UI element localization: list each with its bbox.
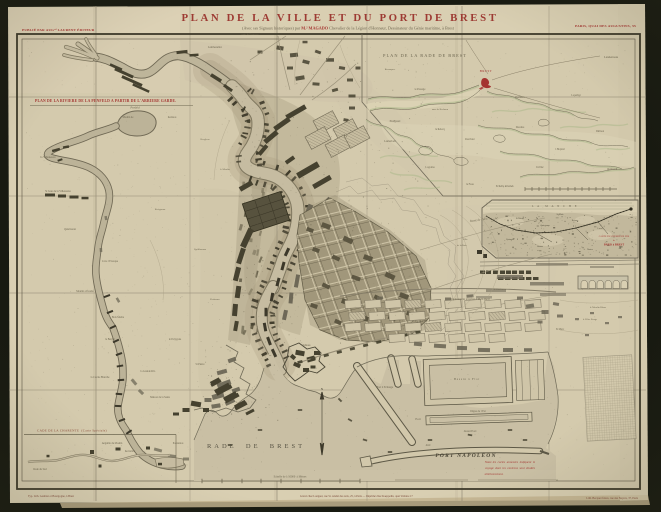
svg-text:le Guelmeur: le Guelmeur bbox=[494, 288, 507, 291]
svg-text:Lauberlach: Lauberlach bbox=[384, 140, 396, 143]
svg-text:le Pilier Rouge: le Pilier Rouge bbox=[583, 318, 597, 321]
svg-text:Dirinon: Dirinon bbox=[596, 130, 605, 133]
svg-text:Rennes: Rennes bbox=[572, 220, 579, 222]
svg-text:RADE DE BREST: RADE DE BREST bbox=[207, 443, 305, 450]
svg-text:route de Lesneven: route de Lesneven bbox=[242, 34, 260, 36]
svg-text:Vannes: Vannes bbox=[537, 246, 543, 248]
svg-text:Nota: les cartes annexées i: Nota: les cartes annexées indiquent le bbox=[484, 460, 536, 464]
svg-text:Avant Port: Avant Port bbox=[464, 429, 477, 433]
svg-text:Gravé chez Longuet, rue St. An: Gravé chez Longuet, rue St. André des Ar… bbox=[300, 495, 413, 498]
svg-text:anse de Kerhuon: anse de Kerhuon bbox=[432, 108, 449, 111]
svg-text:la Villeneuve: la Villeneuve bbox=[40, 155, 56, 159]
svg-text:Laval: Laval bbox=[598, 228, 603, 230]
svg-text:Rostiviec: Rostiviec bbox=[465, 138, 476, 141]
svg-text:PLAN DE LA RIVIERE DE LA PENFE: PLAN DE LA RIVIERE DE LA PENFELD A PARTI… bbox=[35, 99, 176, 103]
svg-text:Lambezellec: Lambezellec bbox=[208, 46, 223, 49]
svg-text:la Cavale Blanche: la Cavale Blanche bbox=[91, 376, 111, 379]
svg-text:Port: Port bbox=[415, 417, 420, 421]
svg-text:le Moulin Blanc: le Moulin Blanc bbox=[590, 306, 607, 309]
svg-text:le Faou: le Faou bbox=[466, 183, 474, 186]
svg-text:Typ. Lith. Gaultier et Bourgog: Typ. Lith. Gaultier et Bourgogne, à Bres… bbox=[28, 495, 74, 498]
svg-text:Jetée: Jetée bbox=[425, 444, 431, 447]
svg-text:PARIS, QUAI DES AUGUSTINS, 55: PARIS, QUAI DES AUGUSTINS, 55 bbox=[575, 24, 636, 28]
svg-text:Kergleuz: Kergleuz bbox=[200, 138, 210, 141]
svg-text:Plougastel: Plougastel bbox=[390, 120, 401, 123]
svg-text:Kervallon: Kervallon bbox=[125, 450, 136, 453]
svg-text:PUBLIÉ PAR AUGᵉᵈ LAURENT ÉDITE: PUBLIÉ PAR AUGᵉᵈ LAURENT ÉDITEUR bbox=[22, 27, 95, 32]
svg-text:PARIS à BREST: PARIS à BREST bbox=[604, 244, 624, 247]
svg-text:la Grande Riv.: la Grande Riv. bbox=[140, 370, 155, 373]
svg-text:de la Rade: de la Rade bbox=[457, 244, 467, 247]
svg-text:Quielvezan: Quielvezan bbox=[64, 228, 77, 231]
svg-text:Irvillac: Irvillac bbox=[536, 166, 544, 169]
svg-text:Guingamp: Guingamp bbox=[540, 224, 550, 227]
svg-text:le Bergot: le Bergot bbox=[105, 338, 115, 341]
svg-text:Kerhuon: Kerhuon bbox=[515, 96, 525, 99]
svg-text:PLAN DE LA RADE DE BREST: PLAN DE LA RADE DE BREST bbox=[383, 53, 467, 58]
svg-text:Maison de la Sante: Maison de la Sante bbox=[150, 396, 171, 399]
svg-text:CARTE DU CHEMIN DE FER: CARTE DU CHEMIN DE FER bbox=[599, 235, 630, 238]
svg-text:voyage dont les environs s: voyage dont les environs sont étudiés bbox=[485, 466, 536, 470]
svg-text:Moulin de: Moulin de bbox=[123, 116, 135, 119]
svg-text:Anguille du Moulin: Anguille du Moulin bbox=[102, 442, 123, 445]
svg-text:le Moulin: le Moulin bbox=[220, 168, 231, 171]
svg-text:Moulin a Poudre: Moulin a Poudre bbox=[76, 290, 94, 293]
svg-text:Château: Château bbox=[302, 344, 311, 347]
svg-text:Cave l Evesque: Cave l Evesque bbox=[102, 260, 119, 263]
svg-text:Nantes: Nantes bbox=[587, 249, 593, 251]
svg-text:PORT NAPOLÉON: PORT NAPOLÉON bbox=[435, 451, 496, 459]
svg-text:Quilihouarn: Quilihouarn bbox=[194, 248, 207, 251]
svg-text:Kerampere: Kerampere bbox=[385, 68, 396, 71]
svg-text:L A M A N C H E: L A M A N C H E bbox=[532, 205, 578, 208]
svg-text:Ville Projetée: Ville Projetée bbox=[399, 319, 431, 323]
svg-text:Logonna: Logonna bbox=[425, 166, 435, 169]
svg-text:Echelle kilomét.: Echelle kilomét. bbox=[496, 185, 515, 188]
svg-text:Lith. Becquet frères, rue des: Lith. Becquet frères, rue des Noyers, 37… bbox=[586, 497, 638, 500]
svg-text:Echelle de 1/10000 à Mètres: Echelle de 1/10000 à Mètres bbox=[274, 476, 307, 479]
svg-text:Digue de l Est: Digue de l Est bbox=[470, 410, 486, 413]
svg-text:Port d Echange: Port d Echange bbox=[377, 386, 394, 389]
svg-text:Quimper: Quimper bbox=[506, 239, 514, 241]
svg-text:Bassin à Flot: Bassin à Flot bbox=[454, 377, 480, 381]
svg-text:St Brieuc: St Brieuc bbox=[516, 218, 524, 220]
svg-text:Bois Madre: Bois Madre bbox=[112, 316, 125, 319]
svg-text:le Polygone: le Polygone bbox=[169, 338, 182, 341]
svg-text:de: de bbox=[613, 240, 615, 242]
svg-text:le Passage: le Passage bbox=[415, 88, 427, 91]
svg-text:ultérieurement.: ultérieurement. bbox=[485, 472, 504, 476]
svg-text:St Marc: St Marc bbox=[556, 328, 565, 331]
svg-text:Kerbonne: Kerbonne bbox=[210, 298, 221, 301]
svg-text:St Jean de la Villeneuve: St Jean de la Villeneuve bbox=[45, 190, 72, 193]
svg-text:Pontaniou: Pontaniou bbox=[173, 442, 184, 445]
svg-text:St Malo: St Malo bbox=[557, 214, 565, 216]
svg-text:Kerinou: Kerinou bbox=[168, 116, 177, 119]
svg-text:CADE DE LA CHARENTE (Carte Sp: CADE DE LA CHARENTE (Carte Spéciale) bbox=[37, 429, 107, 433]
svg-text:Penfeld: Penfeld bbox=[129, 106, 140, 110]
svg-text:PLAN DE LA VILLE ET DU PORT DE: PLAN DE LA VILLE ET DU PORT DE BREST bbox=[181, 12, 498, 24]
svg-text:Kerigonan: Kerigonan bbox=[155, 208, 166, 211]
svg-text:Daoulas: Daoulas bbox=[516, 126, 525, 129]
svg-text:le Relecq: le Relecq bbox=[435, 128, 445, 131]
svg-text:St Pierre: St Pierre bbox=[195, 363, 205, 366]
svg-text:Rade du Sud: Rade du Sud bbox=[33, 468, 47, 471]
svg-text:Landerneau: Landerneau bbox=[604, 55, 619, 59]
svg-text:Quimerch: Quimerch bbox=[607, 168, 618, 171]
